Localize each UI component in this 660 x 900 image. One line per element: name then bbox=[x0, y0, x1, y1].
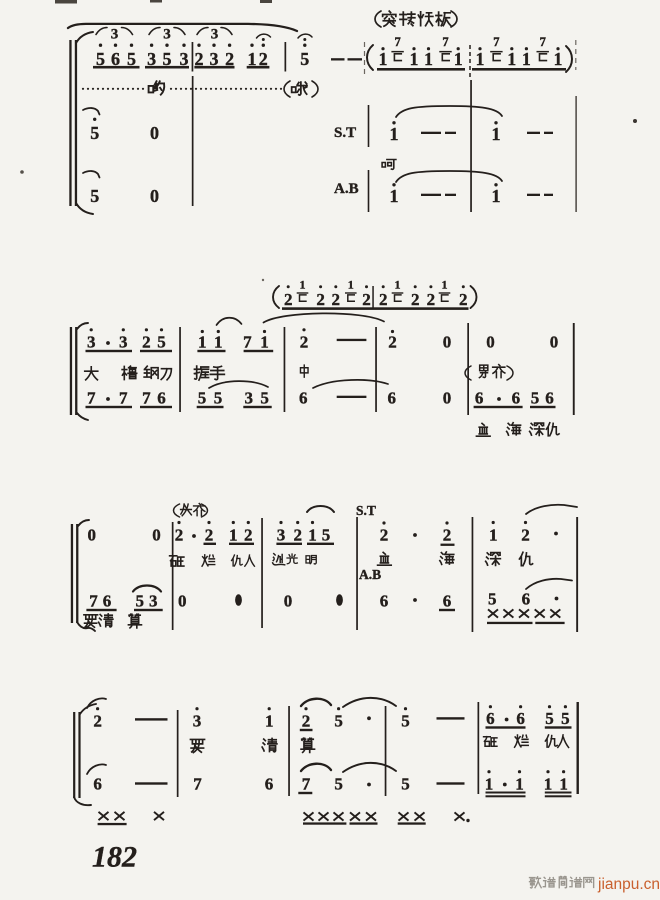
svg-text:1: 1 bbox=[260, 333, 269, 352]
svg-text:1: 1 bbox=[544, 775, 553, 794]
svg-text:2: 2 bbox=[332, 290, 341, 309]
svg-text:7: 7 bbox=[442, 35, 448, 49]
svg-text:5: 5 bbox=[531, 389, 540, 408]
svg-text:5: 5 bbox=[334, 712, 343, 731]
svg-text:5: 5 bbox=[561, 709, 570, 728]
svg-text:3: 3 bbox=[119, 333, 128, 352]
svg-text:3: 3 bbox=[193, 712, 202, 731]
svg-text:1: 1 bbox=[410, 49, 419, 69]
svg-text:S.T: S.T bbox=[334, 125, 356, 141]
svg-text:2: 2 bbox=[388, 333, 397, 352]
svg-text:0: 0 bbox=[150, 186, 159, 206]
svg-text:3: 3 bbox=[277, 526, 286, 545]
svg-text:7: 7 bbox=[142, 389, 151, 408]
svg-text:1: 1 bbox=[476, 49, 485, 69]
svg-text:0: 0 bbox=[150, 123, 159, 143]
svg-text:1: 1 bbox=[390, 124, 399, 144]
svg-text:7: 7 bbox=[540, 35, 546, 49]
svg-text:6: 6 bbox=[265, 775, 274, 794]
svg-text:1: 1 bbox=[454, 49, 463, 69]
svg-text:0: 0 bbox=[443, 389, 452, 408]
svg-text:5: 5 bbox=[401, 712, 410, 731]
svg-text:5: 5 bbox=[401, 775, 410, 794]
svg-text:5: 5 bbox=[135, 592, 144, 611]
svg-text:6: 6 bbox=[157, 389, 166, 408]
svg-text:1: 1 bbox=[559, 775, 568, 794]
svg-text:2: 2 bbox=[362, 290, 371, 309]
svg-text:5: 5 bbox=[322, 526, 331, 545]
svg-text:3: 3 bbox=[111, 27, 119, 43]
svg-text:0: 0 bbox=[486, 333, 495, 352]
svg-text:0: 0 bbox=[88, 526, 97, 545]
svg-text:2: 2 bbox=[411, 290, 420, 309]
svg-text:1: 1 bbox=[442, 278, 448, 292]
svg-text:5: 5 bbox=[260, 389, 269, 408]
svg-text:1: 1 bbox=[265, 712, 274, 731]
svg-text:6: 6 bbox=[545, 389, 554, 408]
svg-text:2: 2 bbox=[380, 526, 389, 545]
svg-text:2: 2 bbox=[142, 333, 151, 352]
svg-text:5: 5 bbox=[545, 709, 554, 728]
svg-text:3: 3 bbox=[149, 592, 158, 611]
svg-text:2: 2 bbox=[293, 526, 302, 545]
svg-text:1: 1 bbox=[492, 186, 501, 206]
svg-text:2: 2 bbox=[443, 526, 452, 545]
svg-text:2: 2 bbox=[379, 290, 388, 309]
svg-text:6: 6 bbox=[103, 592, 112, 611]
svg-text:1: 1 bbox=[214, 333, 223, 352]
svg-text:2: 2 bbox=[302, 712, 311, 731]
svg-text:2: 2 bbox=[459, 290, 468, 309]
svg-text:1: 1 bbox=[229, 526, 238, 545]
svg-text:6: 6 bbox=[93, 775, 102, 794]
svg-text:A.B: A.B bbox=[334, 181, 359, 197]
svg-text:3: 3 bbox=[87, 333, 96, 352]
svg-text:0: 0 bbox=[152, 526, 161, 545]
svg-text:7: 7 bbox=[243, 333, 252, 352]
svg-text:1: 1 bbox=[308, 526, 317, 545]
svg-text:0: 0 bbox=[550, 333, 559, 352]
svg-text:0: 0 bbox=[178, 592, 187, 611]
svg-text:6: 6 bbox=[522, 590, 531, 609]
svg-text:2: 2 bbox=[427, 290, 436, 309]
svg-text:1: 1 bbox=[424, 49, 433, 69]
svg-text:5: 5 bbox=[90, 123, 99, 143]
svg-text:7: 7 bbox=[302, 775, 311, 794]
svg-text:5: 5 bbox=[300, 49, 309, 69]
svg-text:jianpu.cn: jianpu.cn bbox=[597, 876, 660, 893]
svg-text:2: 2 bbox=[316, 290, 325, 309]
svg-text:1: 1 bbox=[507, 49, 516, 69]
svg-text:2: 2 bbox=[175, 526, 184, 545]
svg-text:3: 3 bbox=[163, 27, 171, 43]
svg-text:2: 2 bbox=[300, 333, 309, 352]
svg-text:1: 1 bbox=[198, 333, 207, 352]
svg-text:1: 1 bbox=[522, 49, 531, 69]
svg-text:6: 6 bbox=[443, 592, 452, 611]
svg-text:5: 5 bbox=[214, 389, 223, 408]
svg-text:1: 1 bbox=[395, 278, 401, 292]
svg-text:1: 1 bbox=[379, 49, 388, 69]
svg-text:A.B: A.B bbox=[359, 567, 381, 582]
svg-text:5: 5 bbox=[334, 775, 343, 794]
svg-text:7: 7 bbox=[89, 592, 98, 611]
svg-text:6: 6 bbox=[486, 709, 495, 728]
svg-text:5: 5 bbox=[488, 590, 497, 609]
svg-text:2: 2 bbox=[244, 526, 253, 545]
svg-text:3: 3 bbox=[211, 27, 219, 43]
svg-text:1: 1 bbox=[390, 186, 399, 206]
svg-text:6: 6 bbox=[380, 592, 389, 611]
svg-text:7: 7 bbox=[394, 35, 400, 49]
svg-text:S.T: S.T bbox=[356, 503, 376, 518]
svg-text:2: 2 bbox=[205, 526, 214, 545]
svg-text:6: 6 bbox=[512, 389, 521, 408]
svg-text:1: 1 bbox=[554, 49, 563, 69]
svg-text:6: 6 bbox=[299, 389, 308, 408]
svg-text:3: 3 bbox=[244, 389, 253, 408]
svg-text:1: 1 bbox=[485, 775, 494, 794]
svg-text:1: 1 bbox=[515, 775, 524, 794]
svg-text:7: 7 bbox=[493, 35, 499, 49]
svg-text:182: 182 bbox=[92, 841, 137, 874]
svg-text:0: 0 bbox=[284, 592, 293, 611]
svg-text:5: 5 bbox=[90, 186, 99, 206]
svg-text:1: 1 bbox=[492, 124, 501, 144]
svg-text:7: 7 bbox=[119, 389, 128, 408]
svg-text:2: 2 bbox=[521, 526, 530, 545]
svg-text:7: 7 bbox=[193, 775, 202, 794]
svg-text:5: 5 bbox=[198, 389, 207, 408]
svg-text:5: 5 bbox=[157, 333, 166, 352]
svg-text:1: 1 bbox=[489, 526, 498, 545]
svg-text:0: 0 bbox=[443, 333, 452, 352]
svg-text:1: 1 bbox=[348, 278, 354, 292]
svg-text:6: 6 bbox=[516, 709, 525, 728]
svg-text:2: 2 bbox=[284, 290, 293, 309]
svg-text:2: 2 bbox=[93, 712, 102, 731]
svg-text:1: 1 bbox=[300, 278, 306, 292]
svg-text:6: 6 bbox=[475, 389, 484, 408]
svg-text:6: 6 bbox=[388, 389, 397, 408]
svg-text:7: 7 bbox=[87, 389, 96, 408]
